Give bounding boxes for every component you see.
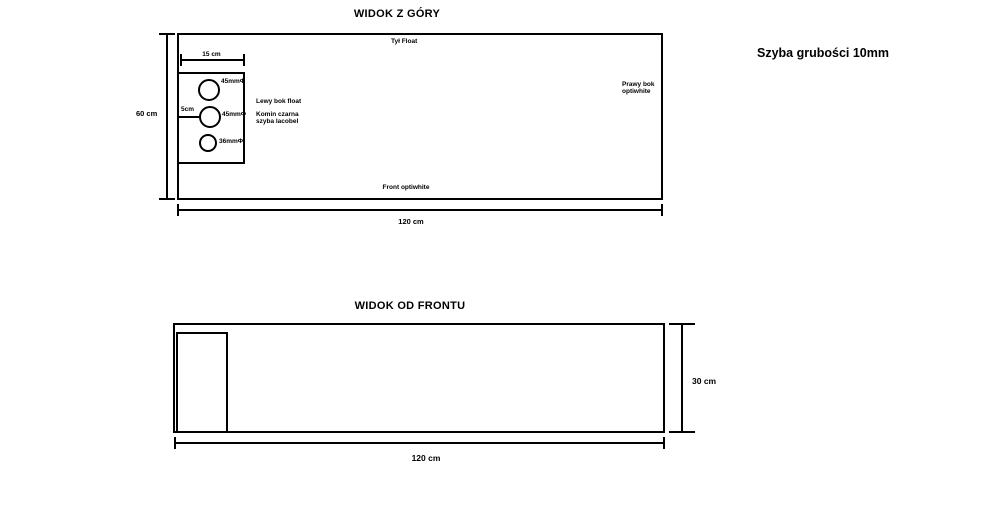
chimney-material-line2: szyba lacobel xyxy=(256,118,299,125)
depth-dimension-line xyxy=(166,33,168,200)
right-panel-label: Prawy bok optiwhite xyxy=(622,81,655,96)
top-view-title: WIDOK Z GÓRY xyxy=(297,8,497,20)
drawing-canvas: WIDOK Z GÓRY Tył Float Front optiwhite P… xyxy=(0,0,1000,525)
chimney-width-dimension-label: 15 cm xyxy=(189,51,234,58)
front-view-width-dimension-label: 120 cm xyxy=(400,454,452,464)
chimney-material-line1: Komin czarna xyxy=(256,111,299,118)
top-view-tank-outline xyxy=(177,33,663,200)
front-view-title: WIDOK OD FRONTU xyxy=(310,300,510,312)
height-dimension-label: 30 cm xyxy=(692,377,716,387)
height-dimension-line xyxy=(681,323,683,433)
chimney-material-label: Komin czarna szyba lacobel xyxy=(256,111,299,126)
front-view-chimney-box xyxy=(176,332,228,433)
chimney-width-dimension-line xyxy=(180,59,245,61)
back-panel-label: Tył Float xyxy=(391,38,417,45)
right-panel-label-line1: Prawy bok xyxy=(622,81,655,88)
hole-45mm-middle xyxy=(199,106,221,128)
hole-offset-label: 5cm xyxy=(181,106,194,113)
glass-thickness-note: Szyba grubości 10mm xyxy=(757,46,889,60)
hole-offset-line xyxy=(179,116,200,118)
top-view-width-dimension-line xyxy=(177,209,663,211)
front-view-width-dimension-line xyxy=(174,442,665,444)
top-view-width-dimension-label: 120 cm xyxy=(386,218,436,227)
hole-45mm-top xyxy=(198,79,220,101)
front-panel-label: Front optiwhite xyxy=(356,184,456,191)
hole-36mm-bottom-label: 36mmΦ xyxy=(219,138,243,145)
hole-36mm-bottom xyxy=(199,134,217,152)
hole-45mm-middle-label: 45mmΦ xyxy=(222,111,246,118)
front-view-tank-outline xyxy=(173,323,665,433)
left-panel-label: Lewy bok float xyxy=(256,98,301,105)
depth-dimension-label: 60 cm xyxy=(136,110,157,119)
hole-45mm-top-label: 45mmΦ xyxy=(221,78,245,85)
right-panel-label-line2: optiwhite xyxy=(622,88,655,95)
